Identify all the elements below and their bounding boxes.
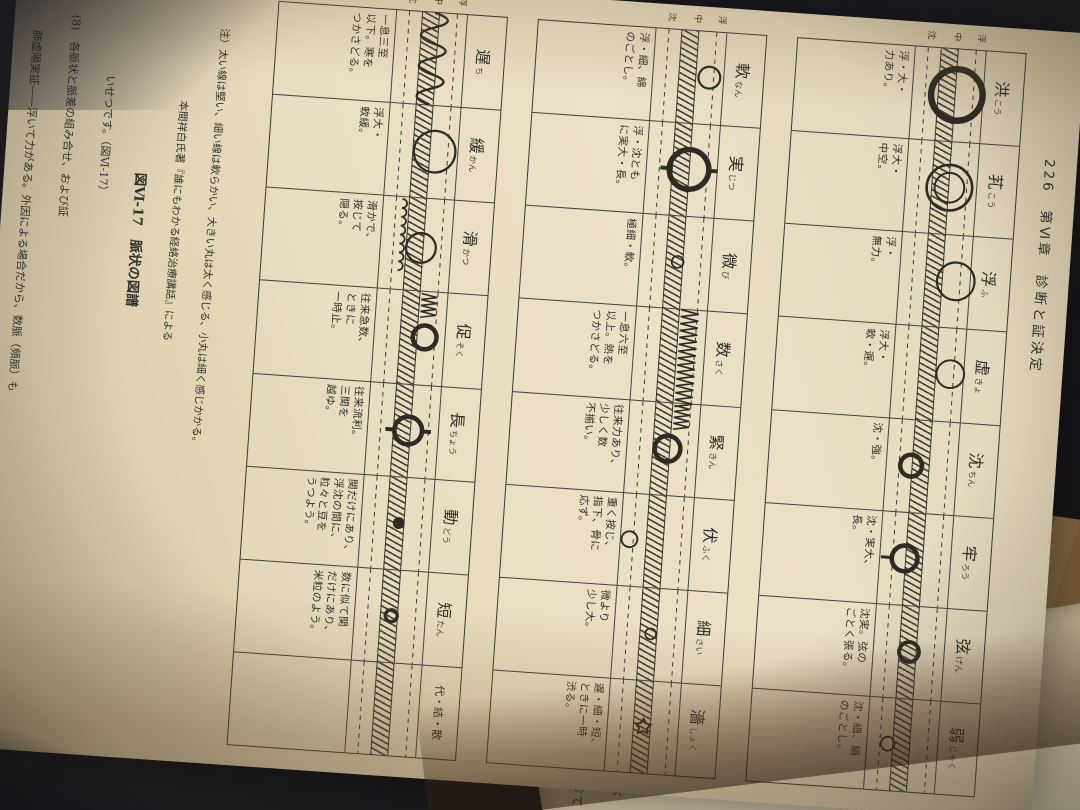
pulse-furigana: び xyxy=(720,270,733,279)
pulse-diagram-cell xyxy=(384,103,460,201)
pulse-name-cell: 遅ち xyxy=(461,15,507,111)
pulse-diagram-cell xyxy=(391,10,467,108)
pulse-desc-cell: 往来流利。 三関を 越ゆ。 xyxy=(247,374,371,475)
pulse-diagram-cell xyxy=(378,196,454,294)
pulse-symbol-ring xyxy=(618,493,694,590)
levels-labels: 浮中沈 xyxy=(766,19,767,35)
pulse-desc-cell: 浮・細、綿 のごとし。 xyxy=(532,20,656,121)
pulse-desc-cell xyxy=(228,652,352,752)
pulse-furigana: ろう xyxy=(959,563,972,581)
pulse-name-cell: 芤こう xyxy=(973,144,1019,240)
pulse-desc-cell: 浮・大・ 力あり。 xyxy=(792,38,916,139)
pulse-name-cell: 促そく xyxy=(441,294,487,390)
pulse-symbol-ring xyxy=(352,568,428,665)
pulse-furigana: そく xyxy=(454,341,467,359)
pulse-diagram-cell xyxy=(890,325,966,423)
pulse-furigana: こう xyxy=(992,98,1005,116)
pulse-name: 芤 xyxy=(985,173,1010,191)
pulse-diagram-cell xyxy=(883,418,959,516)
pulse-name-cell: 実じつ xyxy=(713,126,759,222)
pulse-name: 浮 xyxy=(978,270,1003,288)
book-photo: 加わる病脈でりますが力があどちらす。陽実（力あで述べを診て 226 第Ⅵ章 診断… xyxy=(0,0,1080,810)
pulse-name-cell: 牢ろう xyxy=(947,516,993,612)
pulse-symbol-ring xyxy=(897,232,973,329)
pulse-symbol-zigzag xyxy=(631,307,707,404)
pulse-name-cell: 滑かつ xyxy=(448,201,494,297)
pulse-name-cell: 軟なん xyxy=(720,33,766,129)
pulse-desc-cell: 沈・実大、 長。 xyxy=(759,503,883,604)
level-label: 中 xyxy=(951,32,965,42)
level-label: 浮 xyxy=(716,15,730,25)
levels-labels: 浮中沈 xyxy=(507,1,508,17)
pulse-diagram-cell xyxy=(644,121,720,219)
pulse-desc-cell: 一息六至 以上。熱を つかさどる。 xyxy=(513,299,637,400)
pulse-desc-cell: 滑かで、 按じて 隠る。 xyxy=(260,188,384,289)
pulse-symbol-ring xyxy=(612,586,688,683)
level-label: 中 xyxy=(433,0,447,6)
page-header: 226 第Ⅵ章 診断と証決定 xyxy=(1026,158,1061,374)
pulse-band-3: 浮中沈遅ち緩かん滑かつ促そく長ちょう動どう短たん代・結・散一息三至 以下。寒を … xyxy=(227,1,508,761)
pulse-desc-cell: 浮大・ 軟・遅。 xyxy=(772,317,896,418)
pulse-furigana: かん xyxy=(467,155,480,173)
pulse-diagram-cell xyxy=(618,493,694,591)
pulse-symbol-coil xyxy=(378,196,454,293)
level-label: 中 xyxy=(692,14,706,24)
pulse-name: 軟 xyxy=(732,62,757,80)
pulse-desc-cell: 往来力あり、 少しく数 不揃い。 xyxy=(506,392,630,493)
pulse-name: 沈 xyxy=(965,452,990,470)
pulse-diagram-cell xyxy=(637,214,713,312)
pulse-furigana: ちょう xyxy=(447,430,461,456)
pulse-name: 緩 xyxy=(466,137,491,155)
pulse-furigana: たん xyxy=(434,620,447,638)
pulse-desc-cell: 浮大・ 中空。 xyxy=(785,131,909,232)
pulse-symbol-ring xyxy=(372,289,448,386)
pulse-diagram-cell xyxy=(624,400,700,498)
pulse-name: 洪 xyxy=(991,80,1016,98)
pulse-name: 微 xyxy=(718,252,743,270)
pulse-symbol-ring xyxy=(644,121,720,218)
pulse-diagram-cell xyxy=(903,139,979,237)
pulse-desc-cell: 浮・ 無力。 xyxy=(779,224,903,325)
pulse-name: 実 xyxy=(725,155,750,173)
pulse-name: 動 xyxy=(440,509,465,527)
pulse-name: 短 xyxy=(433,602,458,620)
pulse-furigana: さい xyxy=(693,638,706,656)
pulse-name-cell: 緩かん xyxy=(454,108,500,204)
pulse-diagram-cell xyxy=(352,568,428,666)
pulse-name: 緊 xyxy=(706,434,731,452)
pulse-name: 伏 xyxy=(699,527,724,545)
pulse-furigana: じつ xyxy=(726,173,739,191)
pulse-diagram-cell xyxy=(896,232,972,330)
pulse-name: 長 xyxy=(447,411,472,429)
pulse-name: 細 xyxy=(693,620,718,638)
pulse-diagram-cell xyxy=(650,28,726,126)
pulse-name: 促 xyxy=(453,323,478,341)
pulse-name-cell: 短たん xyxy=(422,572,468,668)
pulse-symbol-ring xyxy=(891,325,967,422)
level-label: 浮 xyxy=(975,34,989,44)
pulse-name: 遅 xyxy=(472,48,497,66)
pulse-name-cell: 長ちょう xyxy=(435,387,481,483)
pulse-symbol-ring xyxy=(878,511,954,608)
pulse-name: 牢 xyxy=(959,545,984,563)
pulse-furigana: ふ xyxy=(979,289,992,298)
pulse-symbol-ring xyxy=(910,46,986,143)
level-label: 沈 xyxy=(666,12,680,22)
levels-labels: 浮中沈 xyxy=(1026,37,1027,53)
pulse-desc-cell: 数に似て関 だけにあり、 米粒のよう。 xyxy=(234,559,358,660)
pulse-name: 滑 xyxy=(459,230,484,248)
pulse-diagram-cell xyxy=(358,475,434,573)
pulse-furigana: ち xyxy=(473,66,486,75)
bottom-left-shadow xyxy=(0,730,180,810)
pulse-symbol-ring xyxy=(638,214,714,311)
pulse-diagram-cell xyxy=(345,660,421,757)
pulse-desc-cell: 重く按じ、 指下、骨に 応ず。 xyxy=(500,485,624,586)
pulse-desc-cell: 関だけにあり、 浮沈の間に、 粒々と豆を うつよう。 xyxy=(240,466,364,567)
pulse-furigana: こう xyxy=(985,191,998,209)
pulse-symbol-dot xyxy=(359,475,435,572)
pulse-name-cell: 沈ちん xyxy=(953,423,999,519)
pulse-desc-cell: 沈・強。 xyxy=(766,410,890,511)
pulse-symbol-ring xyxy=(365,382,441,479)
pulse-name-cell: 緊きん xyxy=(694,405,740,501)
pulse-name-cell: 微び xyxy=(707,219,753,315)
pulse-diagram-cell xyxy=(365,382,441,480)
pulse-furigana: さく xyxy=(713,359,726,377)
pulse-symbol-double xyxy=(904,139,980,236)
pulse-symbol-ring xyxy=(884,418,960,515)
pulse-name-cell: 虚きょ xyxy=(960,330,1006,426)
pulse-desc-cell: 浮・沈とも に実大・長。 xyxy=(526,113,650,214)
pulse-name-cell: 動どう xyxy=(428,480,474,576)
pulse-diagram-cell xyxy=(611,586,687,684)
figure-caption: 図Ⅵ-17 脈状の図譜 xyxy=(123,172,152,307)
pulse-furigana: ふく xyxy=(700,545,713,563)
pulse-furigana: どう xyxy=(441,527,454,545)
pulse-furigana: なん xyxy=(732,80,745,98)
pulse-name-cell: 伏ふく xyxy=(687,498,733,594)
pulse-symbol-ring xyxy=(385,103,461,200)
pulse-name-cell: 洪こう xyxy=(979,51,1025,147)
pulse-desc-cell: 往来急数、 ときに 一時止。 xyxy=(253,281,377,382)
pulse-diagram-cell xyxy=(631,307,707,405)
pulse-name-cell: 数さく xyxy=(700,312,746,408)
pulse-symbol-ring xyxy=(625,400,701,497)
pulse-name: 数 xyxy=(712,341,737,359)
pulse-furigana: きん xyxy=(706,452,719,470)
level-label: 沈 xyxy=(925,30,939,40)
pulse-desc-cell: 極細・軟。 xyxy=(519,206,643,307)
pulse-symbol-wave xyxy=(391,10,467,107)
level-label: 浮 xyxy=(457,0,471,7)
top-left-shadow xyxy=(0,0,300,110)
pulse-furigana: かつ xyxy=(460,248,473,266)
pulse-furigana: ちん xyxy=(966,470,979,488)
pulse-furigana: きょ xyxy=(972,377,985,395)
pulse-diagram-cell xyxy=(371,289,447,387)
pulse-diagram-cell xyxy=(877,511,953,609)
pulse-diagram-cell xyxy=(909,46,985,144)
pulse-symbol-ring xyxy=(651,28,727,125)
pulse-desc-cell: 微より 少し大。 xyxy=(493,577,617,678)
figure-source: 本間祥白氏著『誰にもわかる経絡治療講話』による xyxy=(160,100,192,342)
pulse-name: 虚 xyxy=(972,359,997,377)
level-label: 沈 xyxy=(407,0,421,4)
